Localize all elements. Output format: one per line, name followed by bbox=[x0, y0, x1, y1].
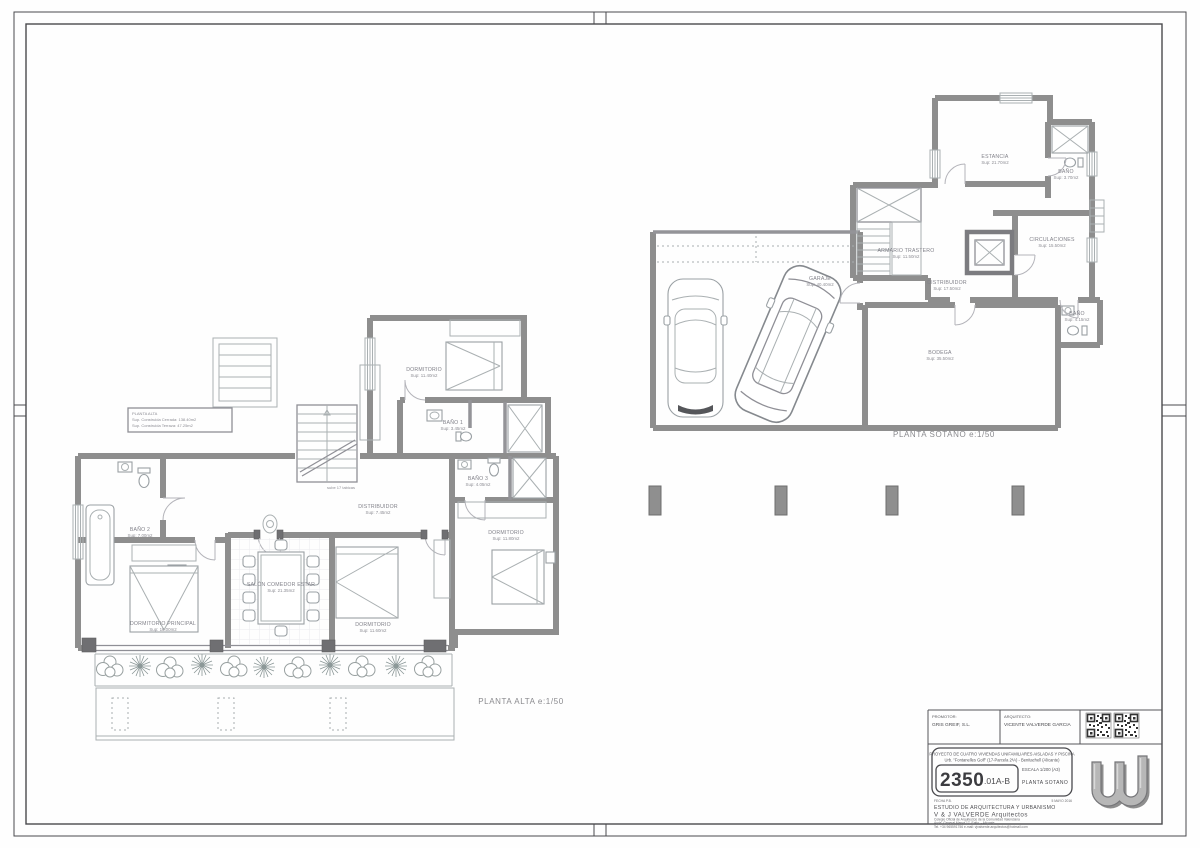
terrace bbox=[82, 638, 454, 740]
bathtub-icon bbox=[86, 505, 114, 585]
svg-text:Sup: 7.00m2: Sup: 7.00m2 bbox=[128, 533, 153, 538]
svg-text:Sup: 3.45m2: Sup: 3.45m2 bbox=[441, 426, 466, 431]
planting-row bbox=[97, 654, 442, 678]
room-label: BAÑO 2 bbox=[130, 526, 150, 533]
car-sedan-topview bbox=[664, 279, 727, 417]
plant-ornament bbox=[263, 515, 277, 533]
svg-text:Sup: 11.80m2: Sup: 11.80m2 bbox=[492, 536, 520, 541]
pergola-post bbox=[322, 640, 335, 652]
svg-text:Sup: 11.40m2: Sup: 11.40m2 bbox=[410, 373, 438, 378]
plan-planta-alta: PLANTA ALTA Sup. Construida Cerrada: 138… bbox=[73, 318, 564, 740]
room-label: BAÑO 3 bbox=[468, 475, 488, 482]
architect-name: VICENTE VALVERDE GARCIA bbox=[1004, 722, 1072, 728]
toilet-icon bbox=[456, 432, 472, 441]
deck bbox=[96, 688, 454, 740]
studio-line1: ESTUDIO DE ARQUITECTURA Y URBANISMO bbox=[934, 805, 1056, 811]
svg-text:Sup: 35.50m2: Sup: 35.50m2 bbox=[926, 356, 954, 361]
svg-text:Sup: 3.70m2: Sup: 3.70m2 bbox=[1054, 175, 1079, 180]
svg-text:Sup: 40.40m2: Sup: 40.40m2 bbox=[806, 282, 834, 287]
note-line-2: Sup. Construida Cerrada: 138.40m2 bbox=[132, 417, 197, 422]
qr-code bbox=[1114, 713, 1139, 738]
svg-text:Sup: 17.50m2: Sup: 17.50m2 bbox=[933, 286, 961, 291]
bathroom-upper bbox=[1052, 126, 1088, 167]
column-marker bbox=[775, 486, 787, 515]
room-label: BAÑO bbox=[1058, 168, 1074, 175]
closet-hatch bbox=[450, 320, 520, 336]
qr-code bbox=[1086, 713, 1111, 738]
bedroom2 bbox=[336, 540, 450, 618]
plan-planta-sotano: GARAJE Sup: 40.40m2 ESTANCIA Sup: 21.70m… bbox=[649, 93, 1104, 515]
pergola-post bbox=[424, 640, 446, 652]
column-markers bbox=[649, 486, 1024, 515]
garage bbox=[657, 236, 856, 429]
svg-text:Sup: 16.00m2: Sup: 16.00m2 bbox=[149, 627, 177, 632]
toilet-icon bbox=[138, 468, 150, 488]
project-title-line1: PROYECTO DE CUATRO VIVIENDAS UNIFAMILIAR… bbox=[929, 752, 1075, 757]
elevator-icon bbox=[967, 232, 1012, 273]
plan-sheet: PLANTA ALTA Sup. Construida Cerrada: 138… bbox=[0, 0, 1200, 848]
svg-text:Sup: 21.70m2: Sup: 21.70m2 bbox=[981, 160, 1009, 165]
promoter-label: PROMOTOR: bbox=[932, 714, 957, 719]
column-marker bbox=[886, 486, 898, 515]
toilet-icon bbox=[1068, 326, 1088, 335]
plan-caption-sotano: PLANTA SOTANO e:1/50 bbox=[893, 430, 995, 439]
bed-icon bbox=[492, 550, 544, 604]
sheet-name: PLANTA SOTANO bbox=[1022, 780, 1068, 786]
sink-icon bbox=[458, 460, 471, 469]
area-note-box: PLANTA ALTA Sup. Construida Cerrada: 138… bbox=[128, 408, 232, 432]
svg-text:Sup: 11.50m2: Sup: 11.50m2 bbox=[892, 254, 920, 259]
shower-icon bbox=[513, 458, 546, 498]
sink-icon bbox=[427, 410, 442, 421]
shower-icon bbox=[1052, 126, 1088, 153]
note-line-3: Sup. Construida Terraza: 47.25m2 bbox=[132, 423, 194, 428]
column-marker bbox=[649, 486, 661, 515]
svg-text:Sup: 15.50m2: Sup: 15.50m2 bbox=[1038, 243, 1066, 248]
room-label: BAÑO 1 bbox=[443, 419, 463, 426]
pergola-post bbox=[82, 638, 96, 652]
pergola bbox=[213, 338, 277, 407]
column-marker bbox=[1012, 486, 1024, 515]
staircase-icon bbox=[857, 188, 921, 275]
toilet-icon bbox=[1065, 158, 1084, 167]
plan-caption-alta: PLANTA ALTA e:1/50 bbox=[478, 697, 564, 706]
date-label: FECHA P.B. bbox=[934, 799, 952, 803]
staircase-icon: sube 17 tabicas bbox=[297, 405, 357, 490]
svg-text:Sup: 4.15m2: Sup: 4.15m2 bbox=[1065, 317, 1090, 322]
scale-label: ESCALA 1/200 (A3) bbox=[1022, 767, 1061, 772]
bedroom-principal bbox=[130, 545, 198, 632]
svg-text:Sup: 4.05m2: Sup: 4.05m2 bbox=[466, 482, 491, 487]
svg-text:Sup: 7.45m2: Sup: 7.45m2 bbox=[366, 510, 391, 515]
project-title-line2: Urb. "Fontanelles Golf" (17-Parcela 2ªA)… bbox=[944, 758, 1060, 763]
date-value: 5 MAYO 2016 bbox=[1052, 799, 1073, 803]
note-line-1: PLANTA ALTA bbox=[132, 411, 158, 416]
sink-icon bbox=[118, 462, 132, 472]
room-label: SALÓN COMEDOR ESTAR bbox=[247, 581, 315, 588]
stair-note: sube 17 tabicas bbox=[327, 485, 355, 490]
title-block: PROMOTOR: GRIS GREIF, S.L. ARQUITECTO: V… bbox=[928, 710, 1162, 829]
pergola-post bbox=[210, 640, 223, 652]
svg-text:Sup: 21.35m2: Sup: 21.35m2 bbox=[267, 588, 295, 593]
room-label: BAÑO bbox=[1069, 310, 1085, 317]
drawing-number: 2350 bbox=[940, 770, 984, 791]
bed-icon bbox=[446, 342, 502, 390]
nightstand bbox=[546, 552, 555, 563]
studio-small-line3: Tel. +34 965591756 e-mail: vjvalverde.ar… bbox=[934, 825, 1028, 829]
bedroom3 bbox=[458, 502, 555, 604]
toilet-icon bbox=[488, 458, 500, 476]
closet-hatch bbox=[458, 502, 546, 518]
closet-hatch bbox=[132, 545, 196, 561]
drawing-canvas: PLANTA ALTA Sup. Construida Cerrada: 138… bbox=[0, 0, 1200, 848]
architect-label: ARQUITECTO: bbox=[1004, 714, 1031, 719]
bed-icon bbox=[336, 547, 398, 618]
closet-hatch bbox=[434, 540, 450, 598]
architect-logo bbox=[1092, 756, 1150, 809]
window-hatches-alta bbox=[73, 338, 375, 559]
svg-text:Sup: 11.60m2: Sup: 11.60m2 bbox=[359, 628, 387, 633]
drawing-number-suffix: .01A-B bbox=[984, 776, 1010, 786]
shower-icon bbox=[508, 405, 542, 452]
promoter-name: GRIS GREIF, S.L. bbox=[932, 722, 970, 728]
